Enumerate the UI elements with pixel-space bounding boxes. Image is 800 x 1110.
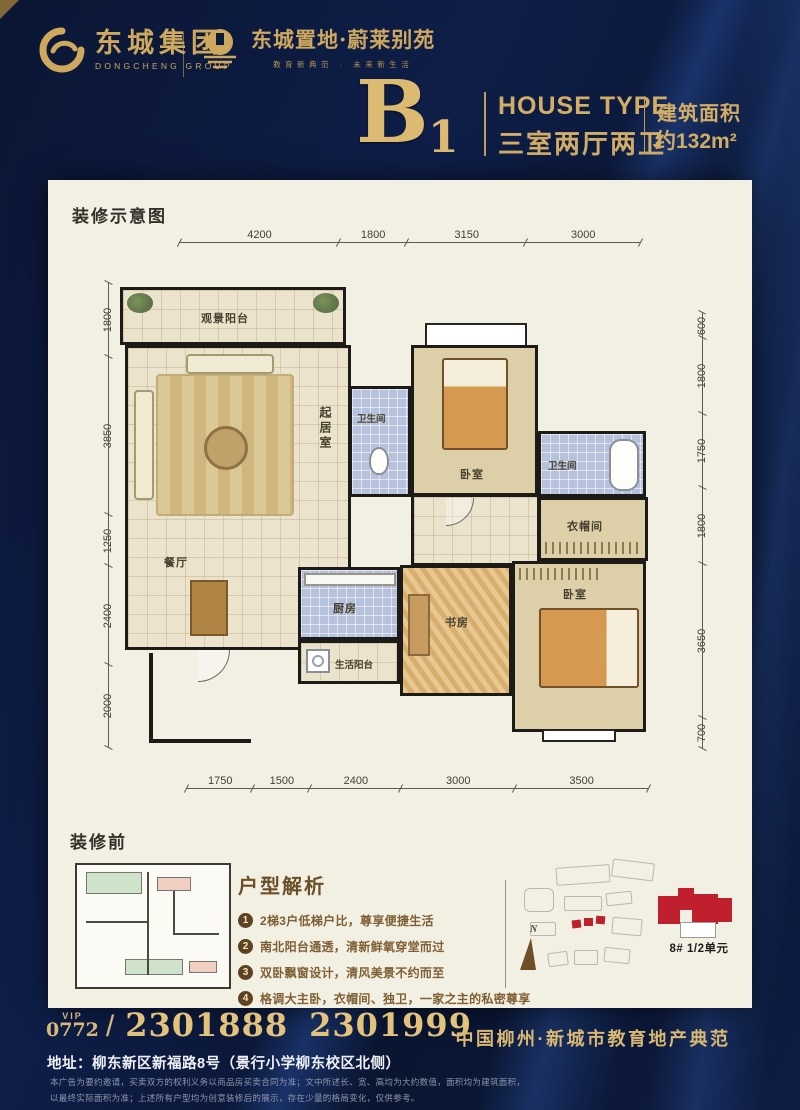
dimension-segment: 700 [694, 718, 710, 748]
dimension-value: 1250 [102, 525, 114, 555]
dimension-value: 3500 [569, 775, 593, 787]
dimensions-bottom: 1750 1500 2400 3000 3500 [187, 776, 648, 792]
dimension-segment: 3150 [407, 230, 526, 246]
dimension-value: 2400 [102, 600, 114, 630]
site-building [524, 888, 554, 912]
point-text: 2梯3户低梯户比，尊享便捷生活 [260, 912, 434, 929]
room-view-balcony-label: 观景阳台 [201, 310, 249, 326]
dimension-segment: 600 [694, 313, 710, 338]
dimension-value: 2000 [102, 691, 114, 721]
dimension-value: 1800 [361, 229, 385, 241]
title-divider [484, 92, 486, 156]
highlighted-unit [572, 920, 582, 929]
floorplan-panel: 装修示意图 4200 1800 3150 3000 1750 1500 2400… [48, 180, 752, 1008]
unit-icon [658, 886, 734, 936]
study-desk [408, 594, 430, 656]
dimension-segment: 3650 [694, 564, 710, 718]
dimension-value: 1750 [208, 775, 232, 787]
dimension-segment: 2400 [310, 776, 401, 792]
site-building [605, 891, 632, 907]
sofa [186, 354, 274, 374]
room-study-label: 书房 [445, 614, 469, 630]
dimension-segment: 2000 [100, 665, 116, 747]
room-bedroom1: 卧室 [411, 345, 538, 496]
dimensions-right: 600 1800 1750 1800 3650 700 [694, 313, 710, 748]
dimension-value: 700 [696, 721, 708, 745]
washer-drum [312, 655, 324, 667]
room-bath1-label: 卫生间 [357, 411, 386, 425]
point-number: 2 [238, 939, 253, 954]
site-building [611, 859, 655, 882]
highlighted-unit [584, 918, 593, 926]
phone-row: VIP 0772 / 2301888 2301999 [46, 1010, 472, 1040]
dimension-segment: 1800 [339, 230, 407, 246]
slogan: 中国柳州·新城市教育地产典范 [418, 1025, 768, 1051]
analysis-point: 2 南北阳台通透，清新鲜氧穿堂而过 [238, 938, 500, 955]
dimension-segment: 1750 [694, 414, 710, 488]
point-text: 格调大主卧，衣帽间、独卫，一家之主的私密尊享 [260, 990, 531, 1007]
dimension-value: 4200 [247, 229, 271, 241]
room-bath2-label: 卫生间 [548, 458, 577, 472]
window [542, 729, 616, 742]
room-bedroom2-label: 卧室 [563, 586, 587, 602]
room-dining-label: 餐厅 [164, 554, 188, 570]
unit-icon-block [658, 896, 680, 924]
dimension-segment: 1800 [694, 338, 710, 414]
siteplan: N 8# 1/2单元 [508, 856, 800, 992]
dimension-value: 3000 [446, 775, 470, 787]
mini-wall [147, 872, 149, 924]
point-text: 双卧飘窗设计，清风美景不约而至 [260, 964, 445, 981]
plan-section-label: 装修示意图 [72, 202, 167, 227]
dimension-value: 3000 [571, 229, 595, 241]
mini-room [189, 961, 217, 973]
disclaimer-line-1: 本广告为要约邀请，买卖双方的权利义务以商品房买卖合同为准；文中所述长、宽、高均为… [50, 1076, 525, 1088]
room-closet-label: 衣帽间 [567, 518, 603, 534]
point-number: 1 [238, 913, 253, 928]
area-label: 建筑面积 [657, 97, 741, 126]
living-round-table [204, 426, 248, 470]
point-number: 3 [238, 965, 253, 980]
group-logo-icon [38, 26, 86, 74]
bed [442, 358, 508, 450]
bed [539, 608, 639, 688]
vip-code-block: VIP 0772 [46, 1011, 99, 1040]
room-kitchen-label: 厨房 [333, 600, 357, 616]
dimension-segment: 1500 [253, 776, 310, 792]
point-number: 4 [238, 991, 253, 1006]
compass-label: N [530, 924, 537, 935]
phone-number-1: 2301888 [125, 1010, 288, 1040]
highlighted-unit [596, 916, 606, 925]
address: 地址：柳东新区新福路8号（景行小学柳东校区北侧） [47, 1052, 401, 1073]
site-building [555, 864, 610, 886]
plant-decor [127, 293, 153, 313]
dimension-segment: 2400 [100, 566, 116, 665]
title-divider-2 [644, 96, 645, 154]
room-kitchen: 厨房 [298, 567, 400, 640]
analysis-point: 4 格调大主卧，衣帽间、独卫，一家之主的私密尊享 [238, 990, 500, 1007]
logo-divider [183, 33, 184, 77]
footer: VIP 0772 / 2301888 2301999 地址：柳东新区新福路8号（… [0, 1008, 800, 1110]
unit-icon-outline [680, 922, 716, 938]
site-building [603, 947, 630, 965]
room-study: 书房 [400, 565, 512, 696]
dimension-segment: 4200 [180, 230, 339, 246]
mini-wall [173, 933, 219, 935]
mini-wall [147, 923, 149, 975]
analysis-point: 1 2梯3户低梯户比，尊享便捷生活 [238, 912, 500, 929]
unit-icon-block [716, 898, 732, 922]
dimension-value: 3650 [696, 626, 708, 656]
unit-label: 8# 1/2单元 [644, 940, 754, 956]
washer [306, 649, 330, 673]
dimensions-top: 4200 1800 3150 3000 [180, 230, 640, 246]
hallway [411, 494, 540, 566]
before-mini-plan [75, 863, 231, 989]
compass-icon [520, 938, 536, 970]
dimension-segment: 1800 [694, 488, 710, 564]
house-type-number: 1 [428, 116, 459, 160]
analysis-point: 3 双卧飘窗设计，清风美景不约而至 [238, 964, 500, 981]
project-name: 东城置地·蔚莱别苑 [251, 24, 435, 54]
dimension-value: 3150 [455, 229, 479, 241]
dimension-segment: 1750 [187, 776, 253, 792]
room-life-balcony-label: 生活阳台 [335, 657, 373, 671]
mini-balcony [125, 959, 183, 975]
dimension-value: 2400 [344, 775, 368, 787]
mini-wall [86, 921, 148, 923]
dimension-value: 1800 [696, 511, 708, 541]
plant-decor [313, 293, 339, 313]
dimension-segment: 1800 [100, 283, 116, 357]
site-building [574, 950, 598, 965]
before-section-label: 装修前 [70, 828, 127, 853]
house-type-cn: 三室两厅两卫 [498, 124, 666, 161]
room-living-label: 起居室 [317, 406, 334, 451]
site-building [564, 896, 602, 911]
dimension-value: 1800 [696, 361, 708, 391]
dimension-segment: 3850 [100, 357, 116, 515]
project-logo-icon [198, 25, 242, 69]
room-life-balcony: 生活阳台 [298, 640, 400, 684]
point-text: 南北阳台通透，清新鲜氧穿堂而过 [260, 938, 445, 955]
room-bath1: 卫生间 [349, 386, 411, 497]
dimensions-left: 1800 3850 1250 2400 2000 [100, 283, 116, 747]
mini-room [157, 877, 191, 891]
unit-icon-block [692, 894, 718, 924]
bathtub [609, 439, 639, 491]
disclaimer-line-2: 以最终实际面积为准；上述所有户型均为创意装修后的展示，存在少量的格局变化，仅供参… [50, 1092, 420, 1104]
dimension-value: 3850 [102, 421, 114, 451]
area-code: 0772 [46, 1021, 99, 1040]
room-bedroom2: 卧室 [512, 561, 646, 732]
dining-table [190, 580, 228, 636]
dimension-value: 1500 [270, 775, 294, 787]
dimension-value: 1800 [102, 305, 114, 335]
house-type-letter: B [356, 70, 429, 156]
analysis-heading: 户型解析 [238, 870, 500, 899]
site-building [611, 917, 642, 937]
mini-balcony [86, 872, 142, 894]
toilet [369, 447, 389, 475]
area-value: 约132m² [655, 125, 737, 155]
room-closet: 衣帽间 [538, 497, 648, 561]
dimension-segment: 3000 [526, 230, 640, 246]
bay-window [425, 323, 527, 347]
site-building [547, 951, 569, 968]
sofa [134, 390, 154, 500]
analysis-points: 1 2梯3户低梯户比，尊享便捷生活 2 南北阳台通透，清新鲜氧穿堂而过 3 双卧… [238, 912, 500, 1007]
room-bath2: 卫生间 [538, 431, 646, 497]
analysis-section: 户型解析 1 2梯3户低梯户比，尊享便捷生活 2 南北阳台通透，清新鲜氧穿堂而过… [238, 870, 500, 1007]
poster: 东城集团 DONGCHENG GROUP 东城置地·蔚莱别苑 教育新典范 · 未… [0, 0, 800, 1110]
room-bedroom1-label: 卧室 [460, 466, 484, 482]
section-divider [505, 880, 506, 988]
dimension-segment: 3500 [515, 776, 648, 792]
mini-wall [173, 891, 175, 935]
dimension-segment: 3000 [401, 776, 515, 792]
kitchen-counter [304, 573, 396, 586]
phone-separator: / [106, 1013, 114, 1040]
room-view-balcony: 观景阳台 [120, 287, 346, 345]
dimension-value: 1750 [696, 436, 708, 466]
dimension-segment: 1250 [100, 515, 116, 566]
